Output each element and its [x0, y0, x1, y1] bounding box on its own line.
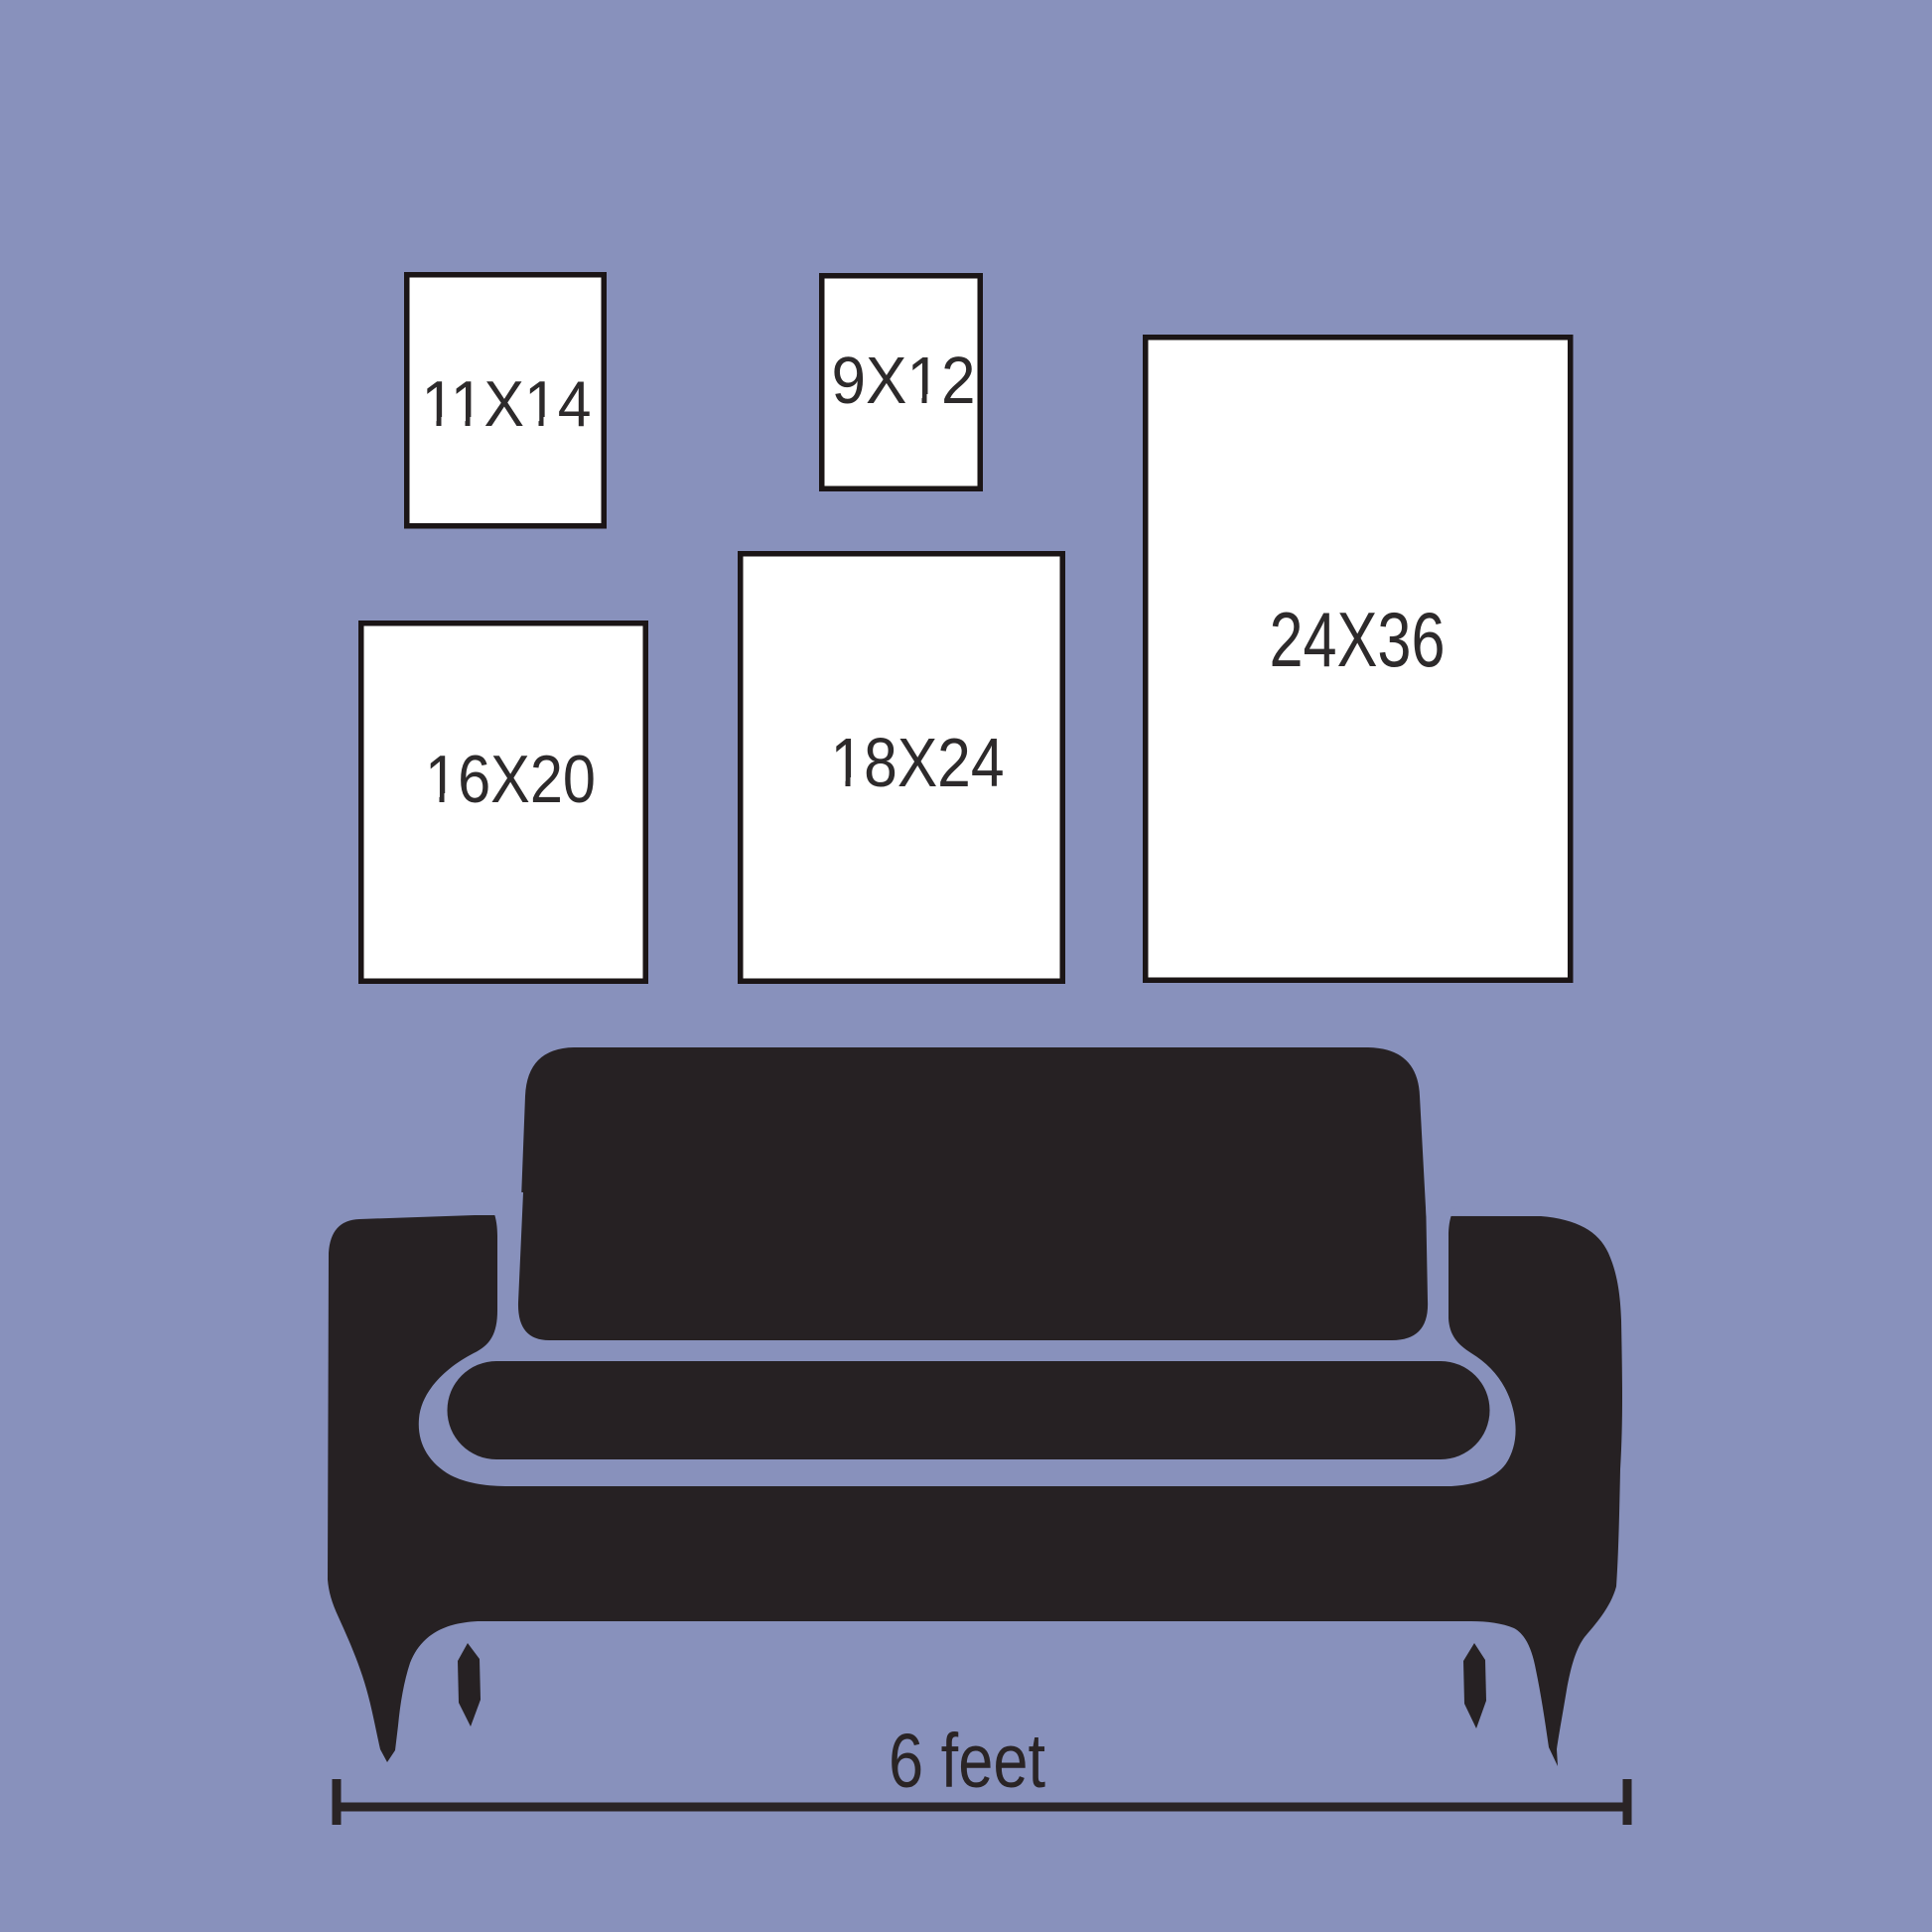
- svg-text:9X12: 9X12: [832, 344, 976, 418]
- svg-text:6 feet: 6 feet: [889, 1719, 1045, 1804]
- svg-text:24X36: 24X36: [1270, 596, 1446, 683]
